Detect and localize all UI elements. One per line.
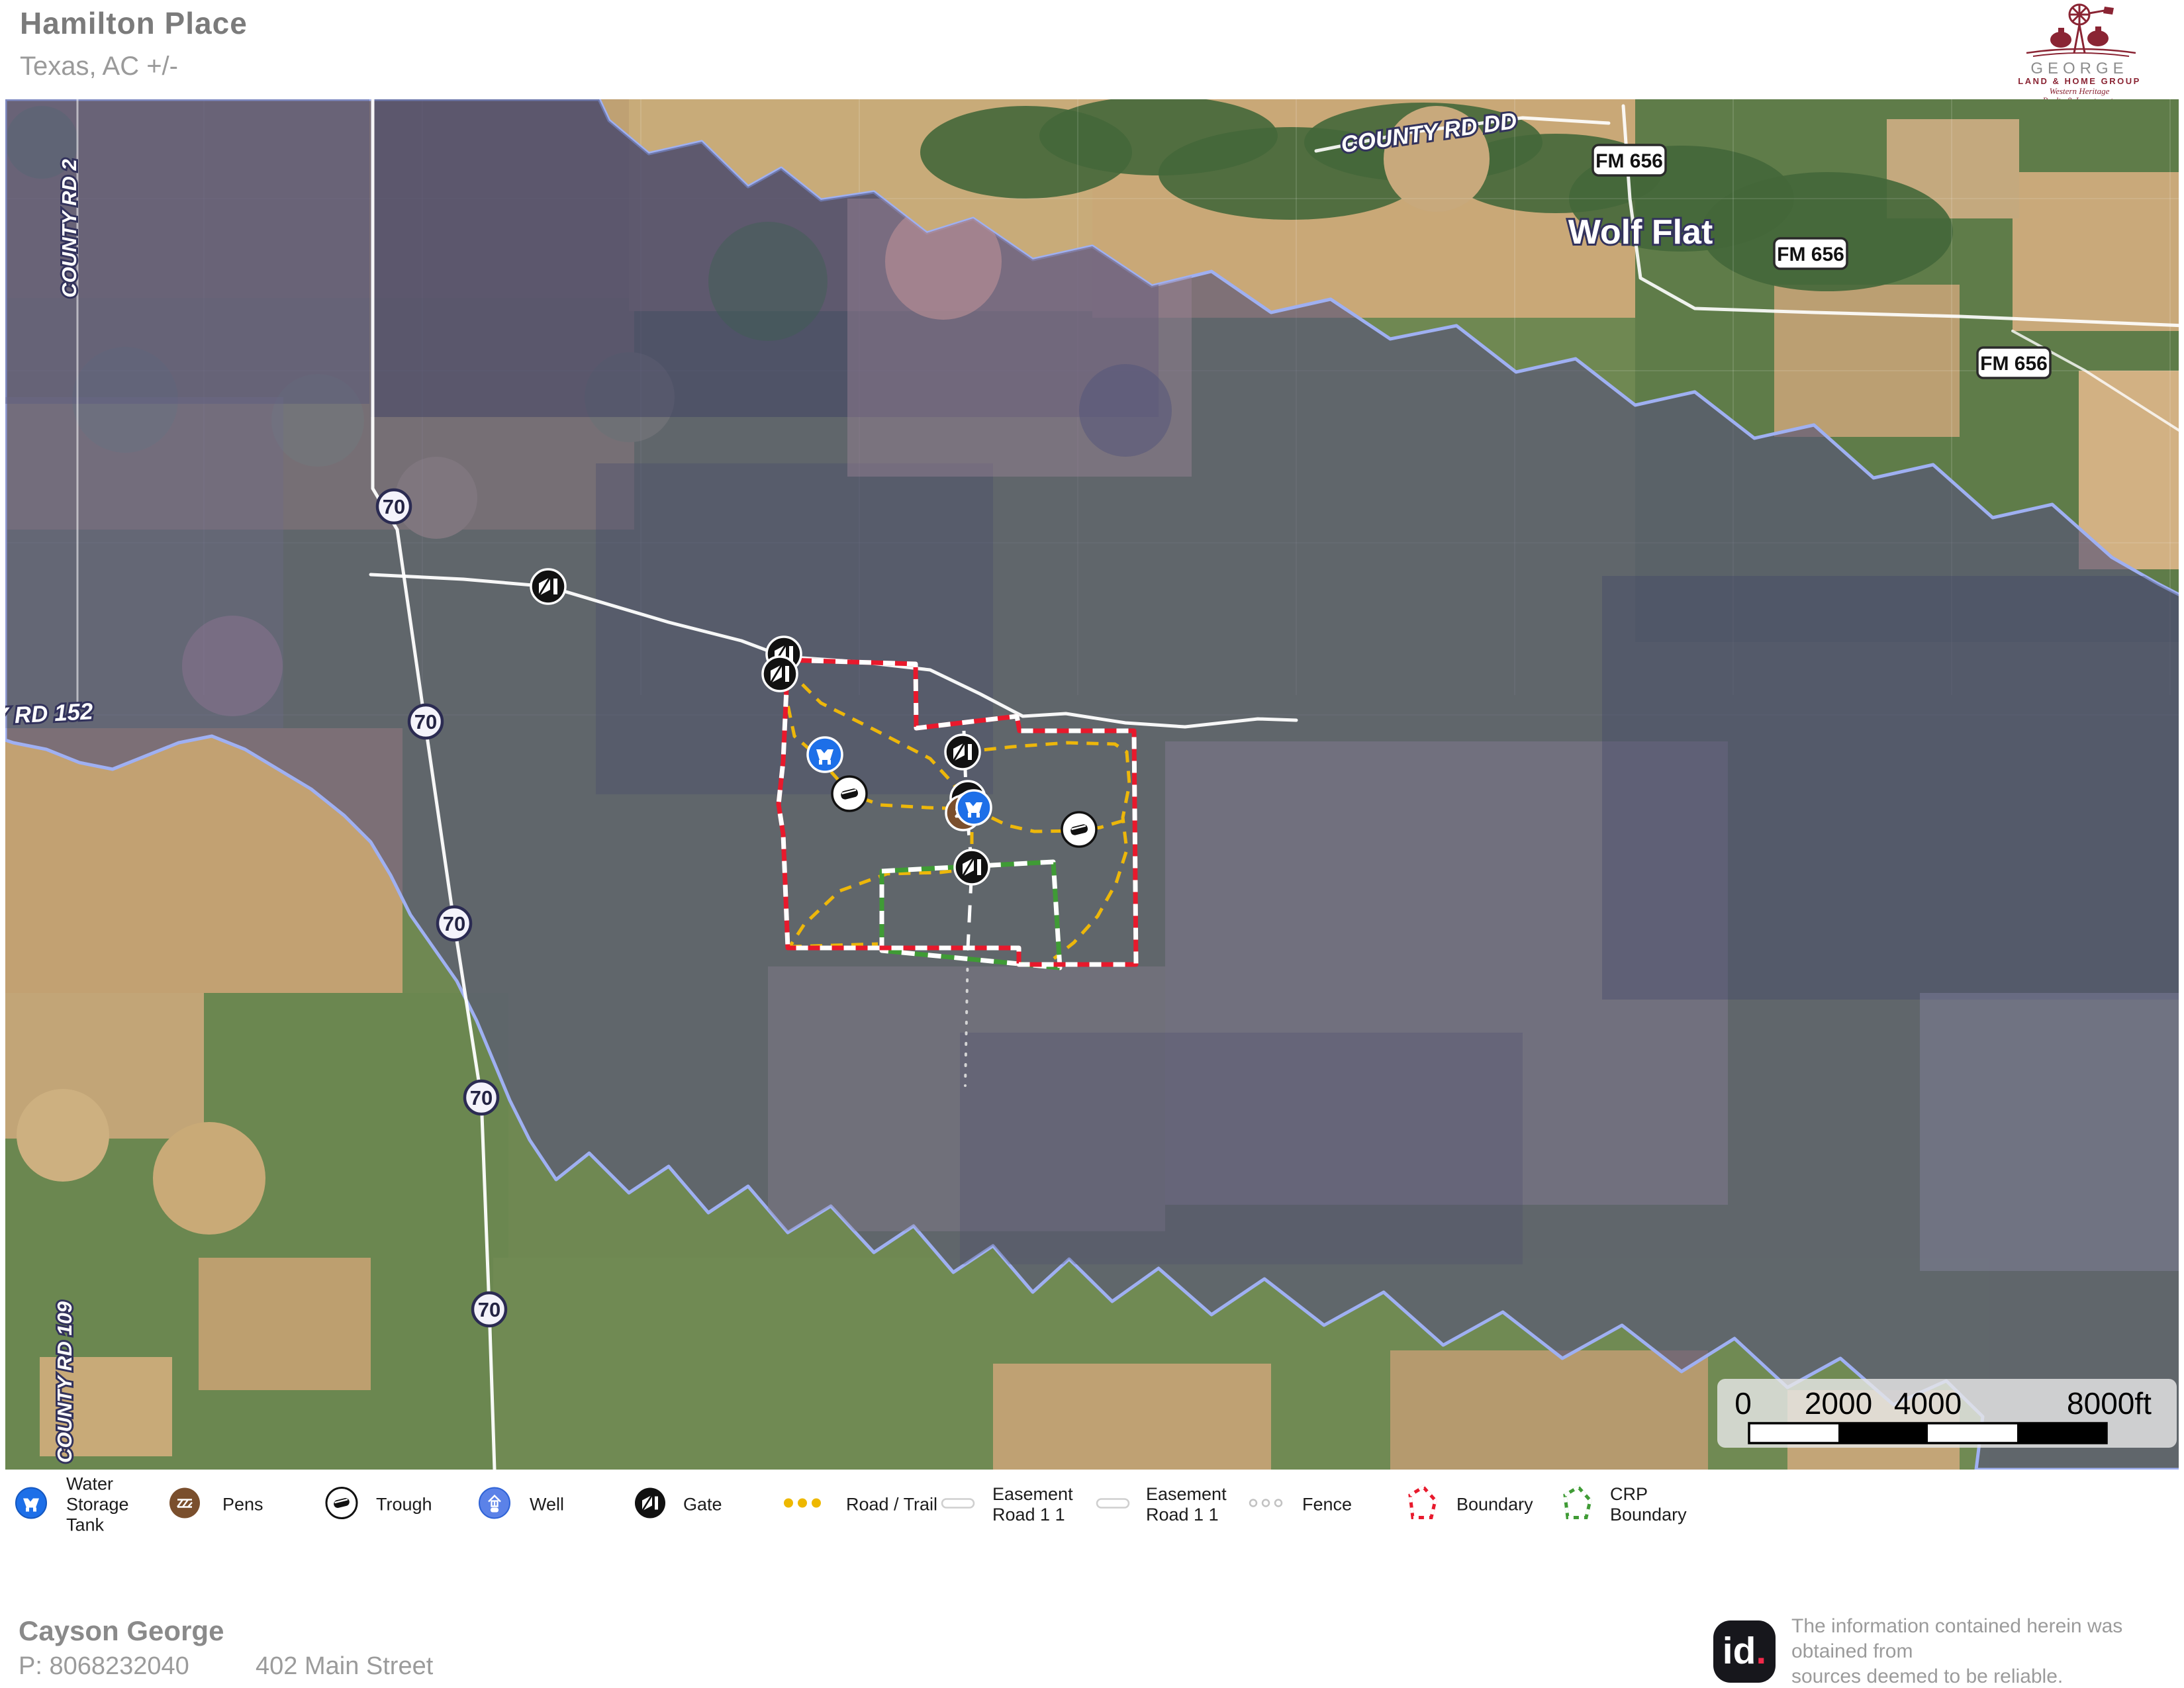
terrain-patch [993,1364,1271,1470]
svg-text:70: 70 [470,1086,493,1109]
svg-text:8000ft: 8000ft [2067,1386,2152,1421]
terrain-patch [1390,1350,1708,1470]
map-road-label: COUNTY RD 109 [53,1301,76,1463]
svg-text:2000: 2000 [1805,1386,1872,1421]
boundary-icon [1401,1483,1441,1526]
map-marker-trough[interactable] [832,776,867,811]
map-marker-gate[interactable] [763,657,797,691]
map-marker-gate[interactable] [531,569,565,604]
tank-icon [14,1486,48,1524]
crp-icon [1556,1483,1595,1526]
map-svg: COUNTY RD 2COUNTY RD DDWolf FlatY RD 152… [5,99,2179,1470]
land-id-logo: id. [1713,1620,1776,1683]
highway-70-shield: 70 [465,1081,498,1114]
legend-label: Easement Road 1 1 [1146,1484,1247,1525]
map-road-label: Y RD 152 [5,698,94,729]
highway-badge: FM 656 [1774,238,1847,269]
agent-name: Cayson George [19,1615,224,1647]
map-road-label: Wolf Flat [1568,213,1713,252]
legend-label: Road / Trail [846,1495,947,1515]
svg-text:70: 70 [443,912,465,935]
svg-text:FM 656: FM 656 [1777,244,1844,265]
terrain-patch [199,1258,371,1390]
svg-text:4000: 4000 [1894,1386,1962,1421]
highway-badge: FM 656 [1593,145,1666,175]
legend-label: CRP Boundary [1610,1484,1711,1525]
logo-tagline: LAND & HOME GROUP [1987,76,2172,87]
george-land-home-logo: GEORGE LAND & HOME GROUP Western Heritag… [1987,1,2172,105]
map-road-label: COUNTY RD 2 [58,159,81,298]
pens-icon [167,1486,202,1524]
legend-label: Pens [222,1495,323,1515]
page-subtitle: Texas, AC +/- [20,52,178,81]
legend-label: Trough [376,1495,477,1515]
highway-70-shield: 70 [409,705,442,738]
disclaimer-text: The information contained herein was obt… [1791,1614,2184,1688]
easement-icon [1094,1486,1131,1524]
logo-name: GEORGE [1987,62,2172,76]
gate-icon [633,1486,667,1524]
map-marker-gate[interactable] [945,735,980,769]
windmill-riders-icon [1987,1,2172,58]
scale-bar: 0200040008000ft [1717,1379,2177,1448]
terrain-patch [1774,285,1960,437]
svg-text:70: 70 [414,710,437,733]
logo-script-1: Western Heritage [1987,87,2172,96]
pivot-field [17,1089,109,1182]
page: Hamilton Place Texas, AC +/- GEORGE LAND… [0,0,2184,1688]
road-icon [781,1486,824,1524]
svg-text:FM 656: FM 656 [1595,150,1663,172]
trough-icon [324,1486,359,1524]
legend-label: Boundary [1456,1495,1557,1515]
svg-text:70: 70 [478,1298,500,1321]
legend-label: Water Storage Tank [66,1474,167,1536]
page-title: Hamilton Place [20,5,248,41]
legend-label: Gate [683,1495,784,1515]
well-icon [477,1486,512,1524]
highway-badge: FM 656 [1977,348,2050,378]
svg-text:0: 0 [1734,1386,1752,1421]
legend-label: Well [530,1495,630,1515]
map-marker-gate[interactable] [955,850,989,884]
map-marker-tank[interactable] [957,790,991,825]
highway-70-shield: 70 [438,907,471,940]
map-marker-tank[interactable] [808,737,842,772]
svg-text:FM 656: FM 656 [1980,353,2048,375]
legend-label: Fence [1302,1495,1403,1515]
easement-icon [939,1486,976,1524]
highway-70-shield: 70 [473,1293,506,1326]
agent-phone: P: 8068232040 [19,1652,189,1681]
terrain-patch [2013,172,2179,331]
highway-70-shield: 70 [377,490,410,523]
svg-text:70: 70 [383,495,405,518]
map-canvas[interactable]: COUNTY RD 2COUNTY RD DDWolf FlatY RD 152… [5,99,2179,1470]
agent-address: 402 Main Street [256,1652,433,1681]
fence-icon [1245,1486,1289,1524]
pivot-field [153,1122,265,1235]
legend-bar: Water Storage TankPensTroughWellGateRoad… [0,1475,2184,1534]
map-marker-trough[interactable] [1062,812,1096,847]
legend-label: Easement Road 1 1 [992,1484,1093,1525]
river-woodland [1701,172,1953,291]
